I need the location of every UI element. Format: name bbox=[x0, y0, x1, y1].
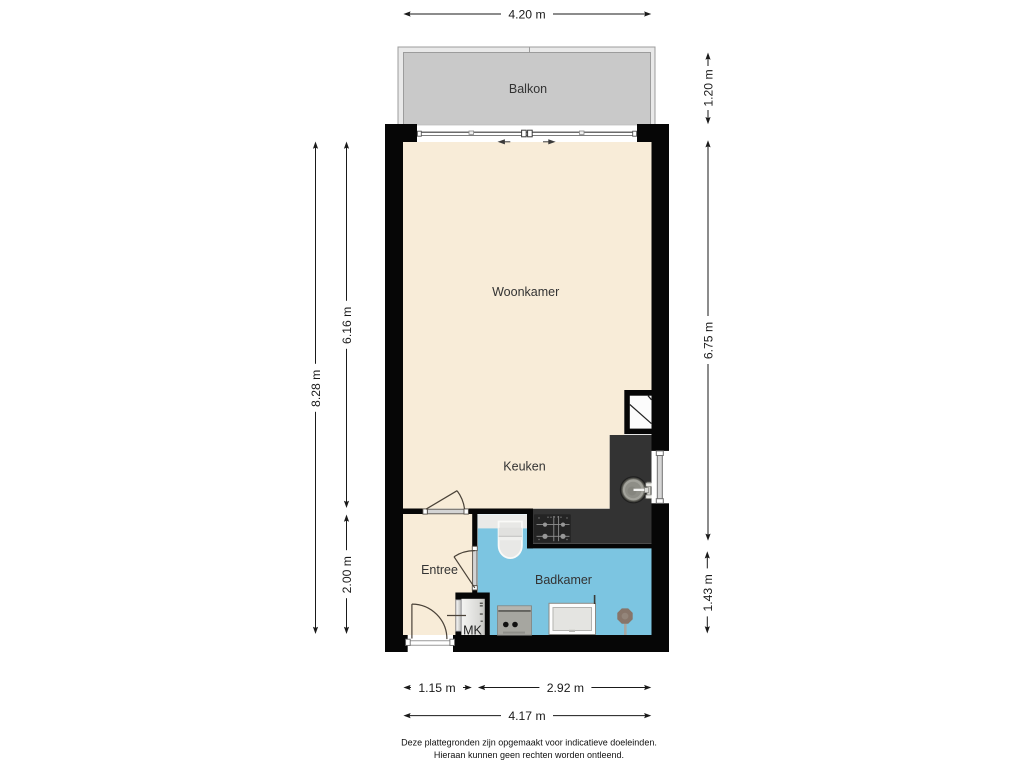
svg-text:Badkamer: Badkamer bbox=[535, 573, 592, 587]
svg-text:Woonkamer: Woonkamer bbox=[492, 285, 559, 299]
svg-text:Keuken: Keuken bbox=[503, 460, 545, 474]
svg-text:1.20 m: 1.20 m bbox=[702, 69, 716, 106]
svg-text:1.15 m: 1.15 m bbox=[418, 681, 455, 695]
svg-text:Deze plattegronden zijn opgema: Deze plattegronden zijn opgemaakt voor i… bbox=[401, 738, 657, 748]
svg-text:4.20 m: 4.20 m bbox=[508, 8, 545, 22]
svg-text:2.00 m: 2.00 m bbox=[340, 556, 354, 593]
svg-text:MK: MK bbox=[463, 624, 482, 638]
svg-text:6.75 m: 6.75 m bbox=[702, 322, 716, 359]
svg-text:1.43 m: 1.43 m bbox=[701, 574, 715, 611]
svg-text:Balkon: Balkon bbox=[509, 82, 547, 96]
svg-text:2.92 m: 2.92 m bbox=[547, 681, 584, 695]
svg-text:Entree: Entree bbox=[421, 563, 458, 577]
svg-text:Hieraan kunnen geen rechten wo: Hieraan kunnen geen rechten worden ontle… bbox=[434, 750, 624, 760]
svg-text:8.28 m: 8.28 m bbox=[309, 370, 323, 407]
svg-text:6.16 m: 6.16 m bbox=[340, 307, 354, 344]
svg-text:4.17 m: 4.17 m bbox=[508, 709, 545, 723]
